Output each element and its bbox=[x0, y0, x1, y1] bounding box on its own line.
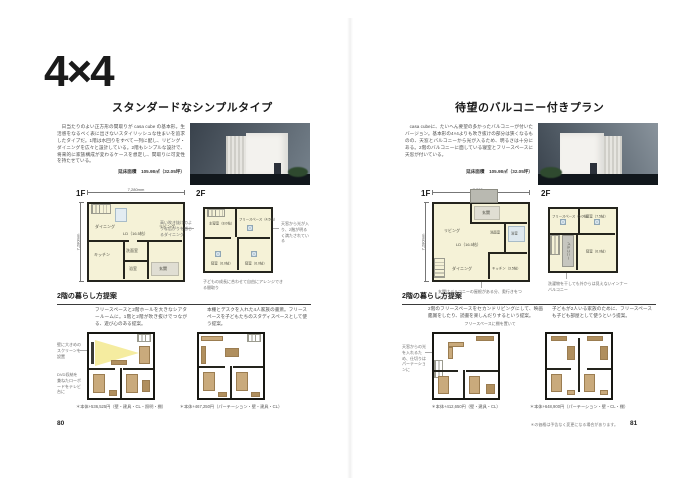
wall bbox=[488, 252, 490, 279]
wall bbox=[504, 222, 506, 252]
room-label: 玄関 bbox=[159, 266, 167, 272]
wall bbox=[230, 366, 232, 398]
stairs bbox=[247, 334, 261, 342]
wall bbox=[123, 260, 148, 262]
shelf bbox=[600, 390, 608, 395]
stairs bbox=[550, 235, 560, 255]
room-label: ダイニング bbox=[95, 224, 115, 230]
book-spread: 4×4 スタンダードなシンプルタイプ 日当たりのよい正方形の間取りが casa … bbox=[0, 0, 700, 495]
wall bbox=[470, 204, 472, 222]
cube-front-face bbox=[246, 133, 288, 176]
bed bbox=[236, 372, 248, 391]
left-1f-dim-side: 7,280mm bbox=[80, 202, 81, 282]
skylight-icon bbox=[560, 219, 566, 225]
desk bbox=[201, 346, 206, 364]
wall bbox=[466, 370, 498, 372]
room-label: 寝室（6.0帖） bbox=[586, 249, 608, 254]
wall bbox=[239, 237, 270, 239]
wall bbox=[199, 366, 225, 368]
cube-louver-face bbox=[226, 136, 246, 176]
lifestyle-plan-right-a bbox=[432, 332, 500, 400]
room-label: キッチン bbox=[94, 252, 110, 258]
left-intro-text: 日当たりのよい正方形の間取りが casa cube の基本形。生活感をなるべく表… bbox=[57, 124, 185, 165]
leader-line bbox=[481, 282, 482, 288]
price-disclaimer: ＊の価格は予告なく変更になる場合があります。 bbox=[500, 422, 618, 428]
wall bbox=[576, 233, 578, 270]
render-bush bbox=[288, 167, 308, 177]
leader-line bbox=[80, 350, 87, 351]
lifestyle-plan-left-b bbox=[197, 332, 265, 400]
left-section-heading: 2階の暮らし方提案 bbox=[57, 291, 311, 305]
stairs bbox=[207, 209, 225, 217]
bed bbox=[438, 376, 449, 394]
skylight-icon bbox=[247, 225, 253, 231]
room-label: ダイニング bbox=[452, 266, 472, 272]
right-section-heading: 2階の暮らし方提案 bbox=[402, 291, 656, 305]
left-proposal-a-text: フリースペースと2階ホールを大きなシアタールームに。1階と2階が吹き抜けでつなが… bbox=[95, 307, 187, 328]
room-label: 浴室 bbox=[129, 266, 137, 272]
floor-plan-right-1f: 玄関 リビング LD（16.5帖） 洗面室 浴室 ダイニング キッチン（3.5帖… bbox=[432, 202, 530, 282]
right-b-caption: ＊本体+648,900円（パーテーション・壁・CL・棚） bbox=[524, 404, 634, 410]
leader-line bbox=[425, 352, 432, 353]
wall bbox=[123, 368, 153, 370]
page-number-right: 81 bbox=[630, 420, 637, 427]
skylight-icon bbox=[594, 219, 600, 225]
left-proposal-b-text: 本棚とデスクを入れた4人家族の書斎。フリースペースを子どもたちのスタディスペース… bbox=[207, 307, 307, 328]
floor-plan-left-2f: 主寝室（8.0帖） フリースペース（4.5帖） 寝室（6.0帖） 寝室（6.0帖… bbox=[203, 207, 273, 273]
room-label: LD（16.5帖） bbox=[456, 242, 481, 248]
leader-line bbox=[273, 228, 279, 229]
bed bbox=[203, 372, 215, 391]
left-a-note1: 壁に大きめのスクリーンを設置 bbox=[57, 342, 81, 359]
bed bbox=[469, 376, 480, 394]
wall bbox=[237, 237, 239, 270]
room-label: 玄関 bbox=[482, 210, 490, 216]
left-2f-note-right: 天窓から光が入り、2階が明るく満たされている bbox=[281, 221, 311, 244]
stairs bbox=[434, 258, 445, 278]
desk bbox=[109, 390, 117, 396]
stairs bbox=[137, 334, 151, 342]
room-label: リビング bbox=[444, 228, 460, 234]
room-label: 寝室（6.0帖） bbox=[211, 261, 233, 266]
low-board bbox=[111, 360, 127, 365]
wall bbox=[488, 252, 527, 254]
screen bbox=[91, 342, 94, 364]
tv-board bbox=[476, 336, 494, 341]
leader-line bbox=[566, 273, 567, 279]
left-a-note2: DVD収納を兼ねたローボードをテレビ台に bbox=[57, 372, 81, 395]
floor-plan-left-1f: ダイニング LD（16.5帖） リビング キッチン 洗面室 浴室 玄関 bbox=[87, 202, 185, 282]
closet bbox=[600, 346, 608, 360]
cube-louver-face bbox=[604, 136, 622, 176]
left-subtitle: スタンダードなシンプルタイプ bbox=[112, 99, 273, 115]
room-label: 主寝室（8.0帖） bbox=[209, 221, 234, 226]
desk bbox=[486, 384, 495, 394]
sofa bbox=[448, 347, 453, 359]
stairs bbox=[91, 204, 111, 214]
wall bbox=[137, 240, 182, 242]
wall bbox=[547, 368, 571, 370]
right-a-caption: ＊本体+412,650円（壁・建具・CL） bbox=[411, 404, 521, 410]
house-render-right bbox=[538, 123, 658, 185]
right-2f-label: 2F bbox=[541, 189, 550, 198]
page-title: 4×4 bbox=[44, 50, 113, 94]
wall bbox=[235, 209, 237, 237]
wall bbox=[233, 366, 263, 368]
render-bush bbox=[540, 167, 562, 178]
lifestyle-plan-left-a bbox=[87, 332, 155, 400]
bed bbox=[93, 374, 105, 393]
bed bbox=[584, 374, 595, 392]
sofa bbox=[139, 346, 150, 364]
right-intro-text: casa cubeに、たいへん要望の多かったバルコニーが付いたバージョン。基本形… bbox=[405, 124, 533, 158]
wall bbox=[434, 370, 458, 372]
left-1f-note: 高い吹き抜けのような広がりを感じるダイニング bbox=[160, 220, 194, 237]
room-label: フリースペース（4.5帖） bbox=[239, 217, 277, 222]
skylight-icon bbox=[215, 251, 221, 257]
wall bbox=[587, 368, 611, 370]
right-floor-area: 延床面積 105.98㎡（32.05坪） bbox=[405, 169, 533, 175]
right-proposal-b-text: 子どもが2人いる家族のために、フリースペースも子ども部屋として使うという提案。 bbox=[552, 306, 652, 320]
bookshelf bbox=[201, 336, 223, 341]
left-2f-label: 2F bbox=[196, 189, 205, 198]
entrance-porch-roof bbox=[470, 189, 498, 203]
void-skylight bbox=[115, 208, 127, 222]
wall bbox=[470, 222, 527, 224]
page-number-left: 80 bbox=[57, 420, 64, 427]
wall bbox=[463, 370, 465, 398]
house-render-left bbox=[190, 123, 310, 185]
room-label: 洗面室 bbox=[490, 230, 500, 235]
left-1f-label: 1F bbox=[76, 189, 85, 198]
closet bbox=[142, 380, 150, 392]
floor-plan-right-2f: バルコニー フリースペース（5.0帖） 寝室（7.5帖） 寝室（6.0帖） bbox=[548, 207, 618, 273]
right-1f-label: 1F bbox=[421, 189, 430, 198]
room-label: 寝室（7.5帖） bbox=[586, 214, 608, 219]
room-label: バルコニー bbox=[566, 242, 571, 260]
table bbox=[225, 348, 239, 357]
closet bbox=[218, 392, 227, 397]
right-a-subnote: フリースペースに棚を置いて bbox=[445, 321, 535, 327]
right-subtitle: 待望のバルコニー付きプラン bbox=[455, 99, 604, 115]
right-1f-dim-side: 7,280mm bbox=[425, 202, 426, 282]
bed bbox=[551, 374, 562, 392]
left-floor-area: 延床面積 105.98㎡（32.05坪） bbox=[57, 169, 185, 175]
wall bbox=[205, 237, 231, 239]
room-label: フリースペース（5.0帖） bbox=[552, 214, 590, 219]
wall bbox=[89, 368, 115, 370]
room-label: キッチン（3.5帖） bbox=[492, 266, 521, 271]
closet bbox=[567, 346, 575, 360]
left-1f-dim-top: 7,280mm bbox=[87, 192, 185, 193]
wall bbox=[578, 338, 580, 392]
desk bbox=[587, 336, 603, 341]
cube-front-face bbox=[560, 133, 604, 176]
skylight-icon bbox=[251, 251, 257, 257]
bed bbox=[126, 374, 138, 393]
lifestyle-plan-right-b bbox=[545, 332, 613, 400]
left-a-caption: ＊本体+536,525円（壁・建具・CL・照明・棚） bbox=[66, 404, 176, 410]
room-label: 寝室（6.0帖） bbox=[245, 261, 267, 266]
right-a-note1: 天窓からの光を入れるため、仕切りはパーテーションに bbox=[402, 344, 426, 373]
inner-balcony: バルコニー bbox=[562, 235, 574, 267]
page-gutter bbox=[347, 18, 353, 478]
left-b-caption: ＊本体+467,250円（パーテーション・壁・建具・CL） bbox=[176, 404, 286, 410]
wall bbox=[578, 209, 580, 233]
closet bbox=[251, 392, 260, 397]
room-label: LD（16.5帖） bbox=[123, 231, 148, 237]
room-label: 浴室 bbox=[511, 231, 518, 236]
wall bbox=[120, 368, 122, 398]
shelf bbox=[567, 390, 575, 395]
left-2f-note-bottom: 子どもの成長に合わせて自由にアレンジできる間取り bbox=[203, 279, 285, 291]
right-proposal-a-text: 2階のフリースペースをセカンドリビングにして、映画鑑賞をしたり、読書を楽しんだり… bbox=[428, 306, 543, 320]
desk bbox=[551, 336, 567, 341]
room-label: 洗面室 bbox=[126, 248, 138, 254]
